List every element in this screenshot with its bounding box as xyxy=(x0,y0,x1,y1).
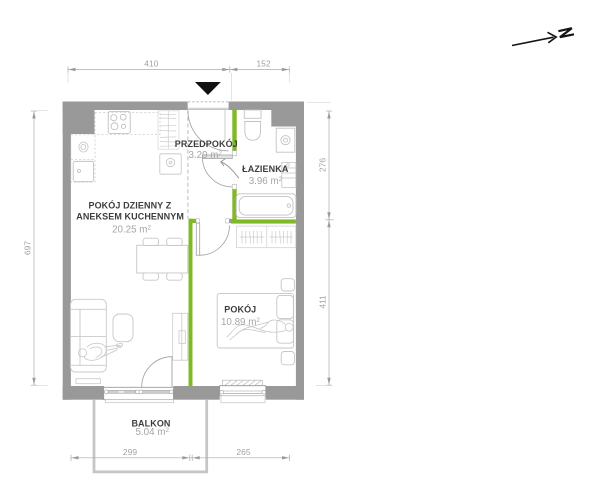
svg-text:PRZEDPOKÓJ: PRZEDPOKÓJ xyxy=(175,138,238,149)
svg-text:ŁAZIENKA: ŁAZIENKA xyxy=(242,164,289,174)
svg-text:POKÓJ DZIENNY Z: POKÓJ DZIENNY Z xyxy=(88,200,171,211)
svg-text:5.04 m2: 5.04 m2 xyxy=(135,427,169,438)
svg-text:276: 276 xyxy=(318,158,328,172)
svg-text:ANEKSEM KUCHENNYM: ANEKSEM KUCHENNYM xyxy=(76,212,184,222)
svg-text:697: 697 xyxy=(23,241,33,255)
svg-text:3.96 m2: 3.96 m2 xyxy=(249,176,283,187)
svg-text:20.25 m2: 20.25 m2 xyxy=(112,224,151,235)
svg-text:265: 265 xyxy=(236,447,250,457)
svg-text:10.89 m2: 10.89 m2 xyxy=(221,317,260,328)
svg-text:152: 152 xyxy=(256,59,270,69)
svg-text:410: 410 xyxy=(144,59,158,69)
svg-text:411: 411 xyxy=(318,295,328,309)
svg-text:299: 299 xyxy=(123,447,137,457)
svg-text:POKÓJ: POKÓJ xyxy=(224,303,256,314)
svg-text:3.29 m2: 3.29 m2 xyxy=(188,150,222,161)
